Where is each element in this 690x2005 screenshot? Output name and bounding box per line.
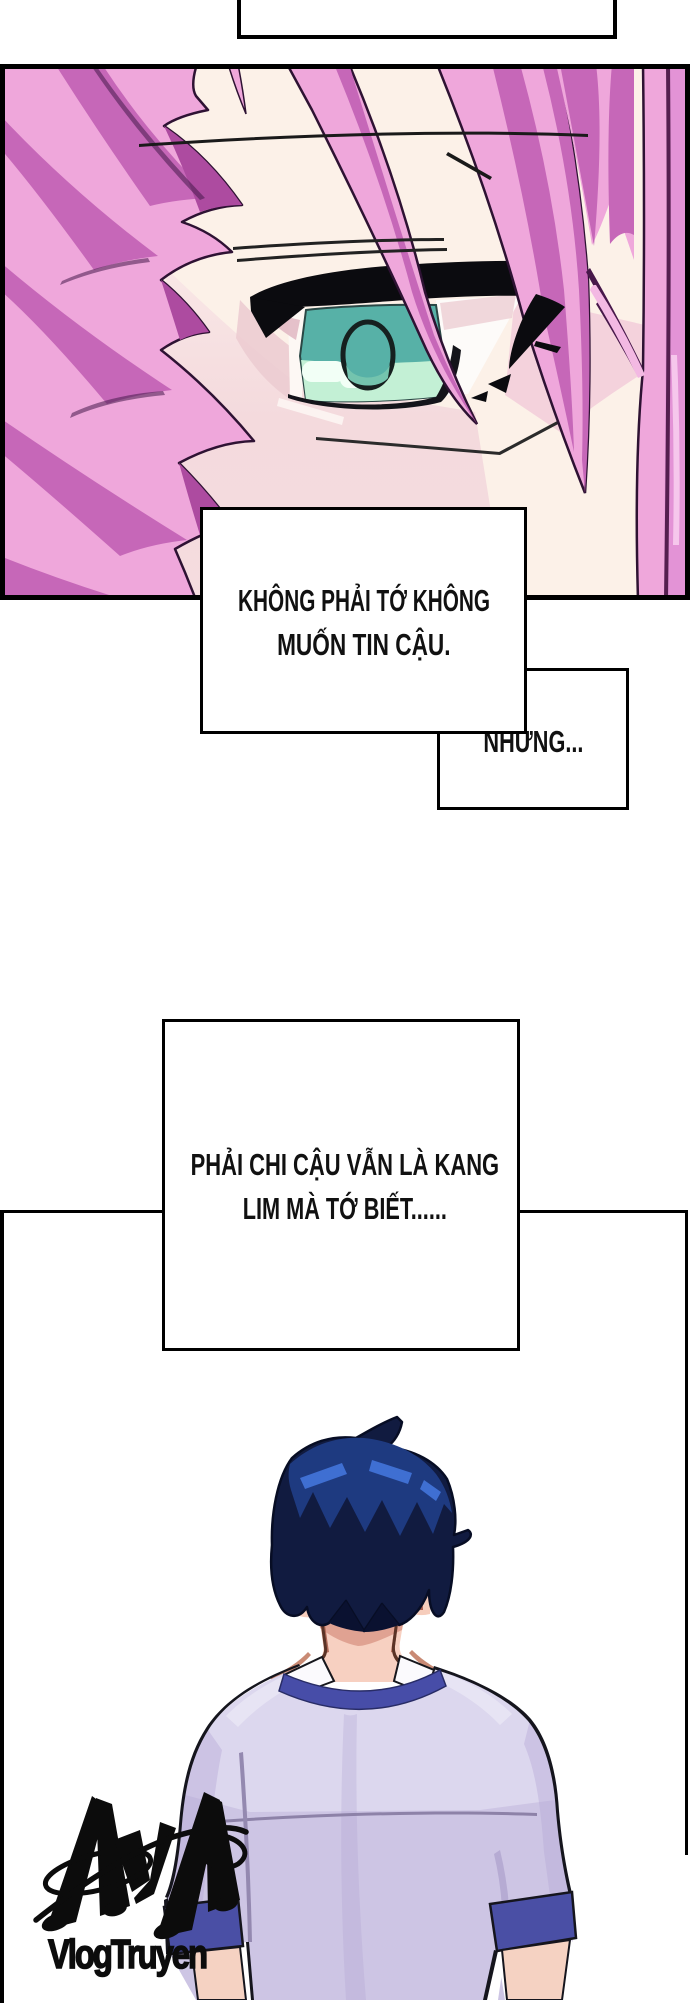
svg-text:VlogTruyen: VlogTruyen (48, 1930, 208, 1976)
